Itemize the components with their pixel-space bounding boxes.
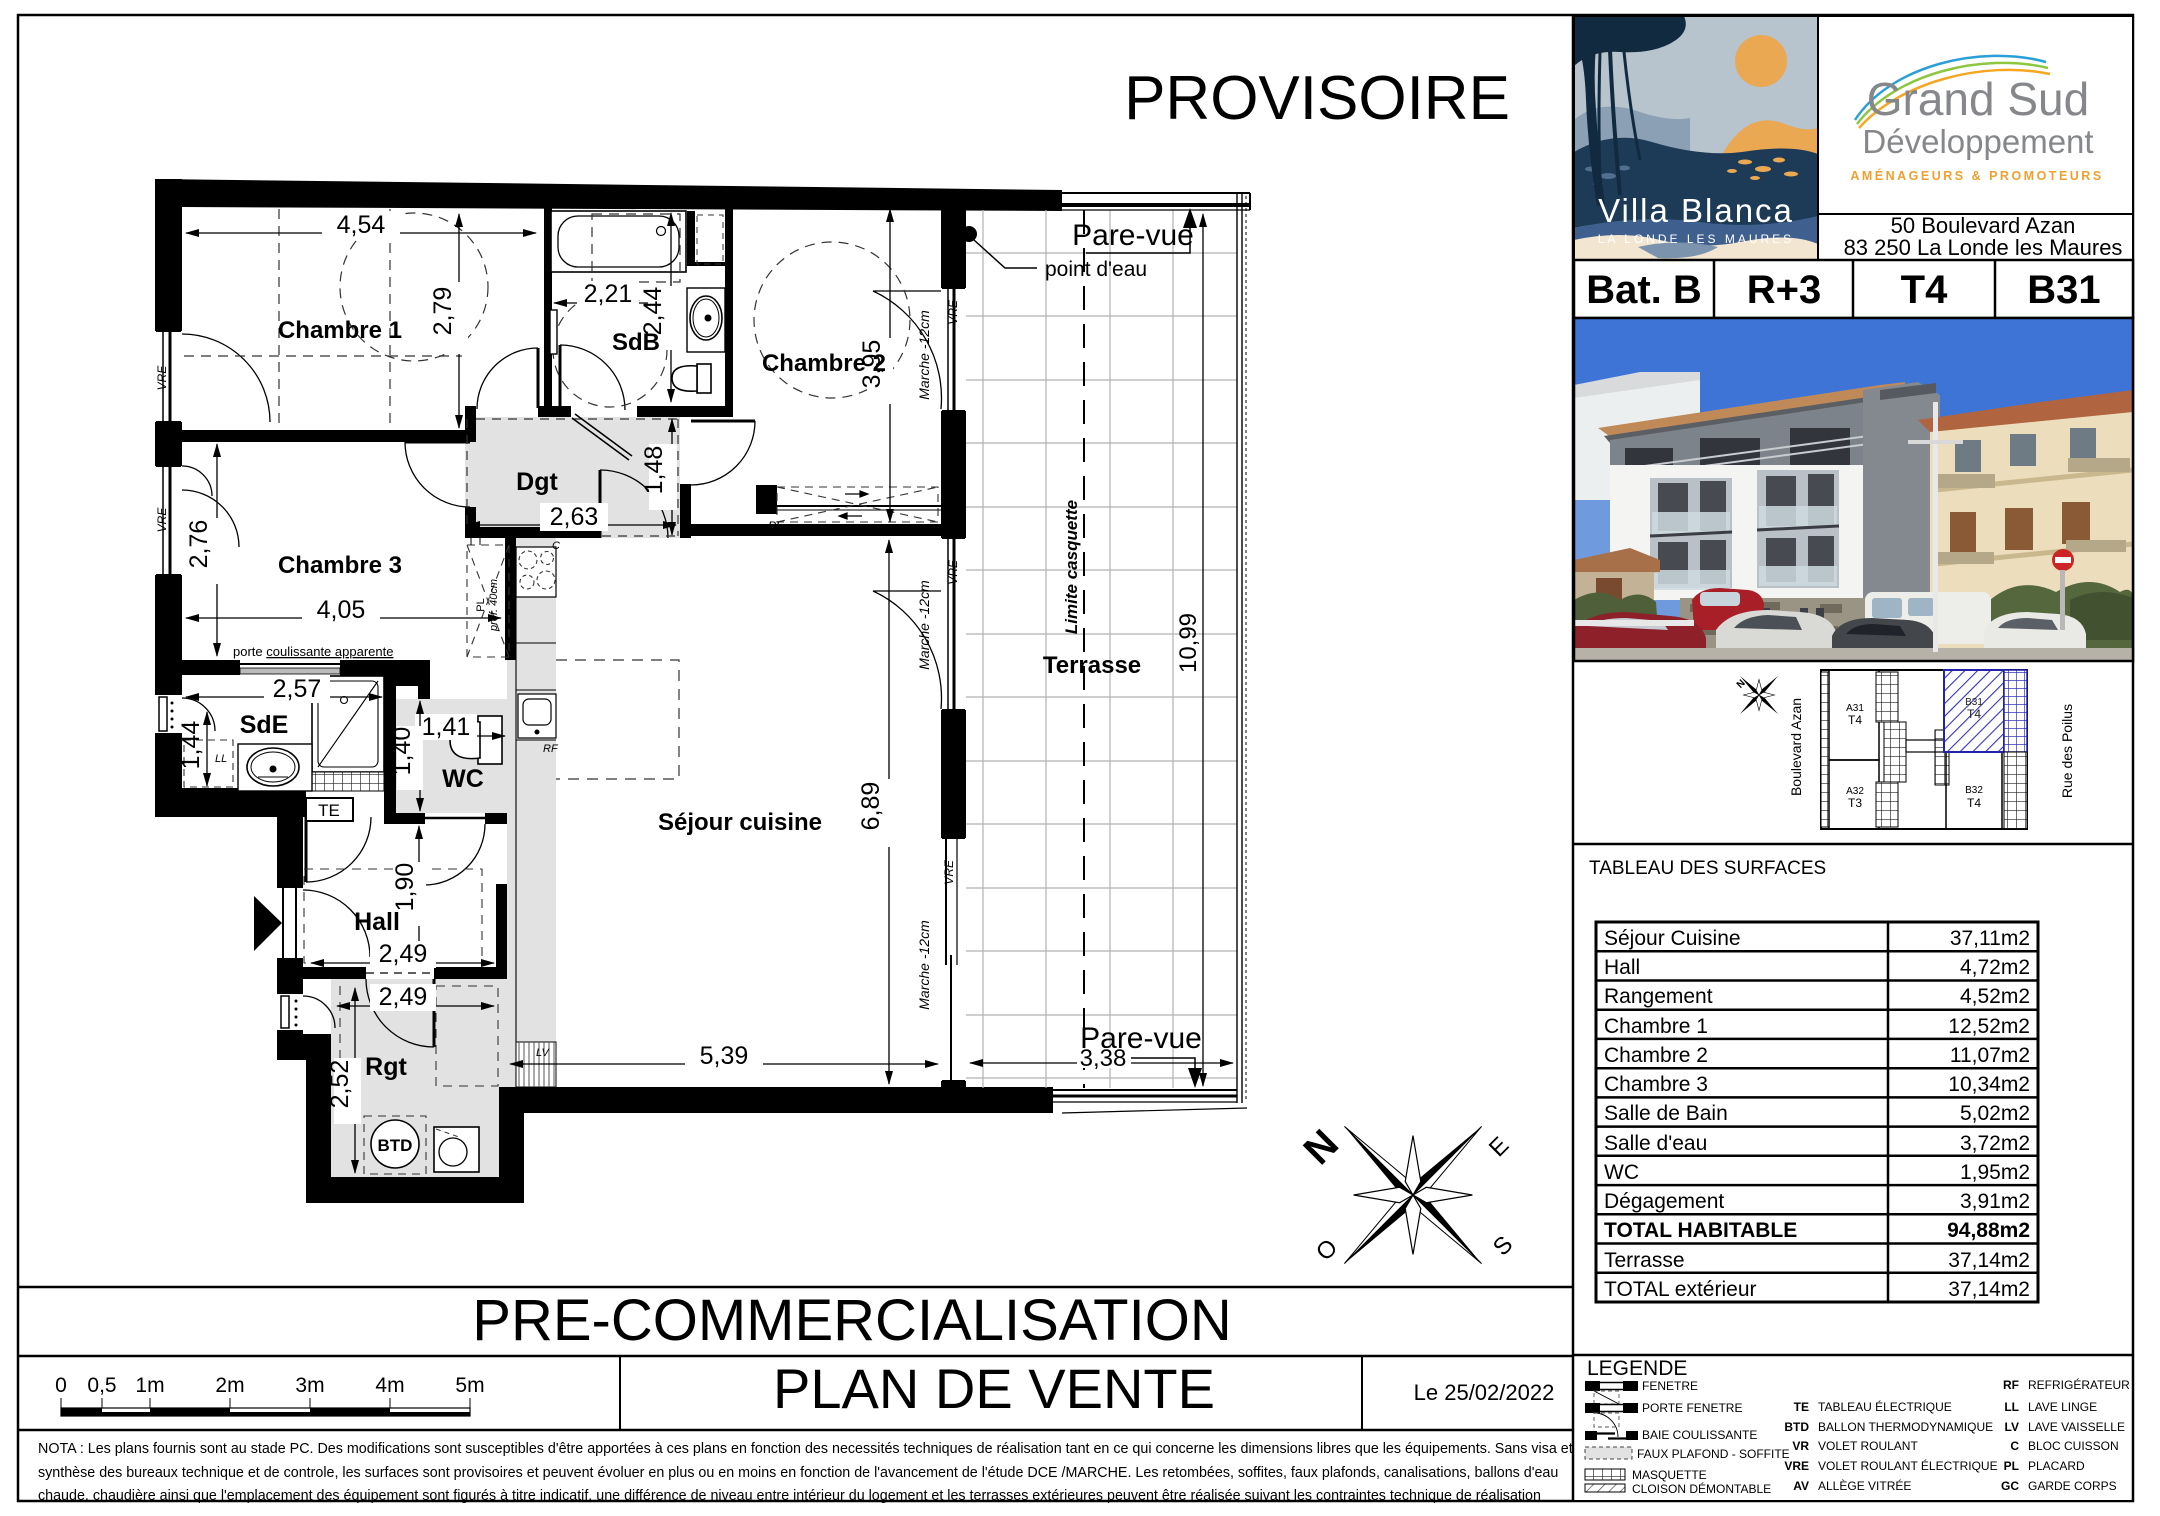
svg-text:Rgt: Rgt bbox=[365, 1053, 407, 1081]
svg-text:Rangement: Rangement bbox=[1604, 985, 1713, 1008]
svg-text:10,34m2: 10,34m2 bbox=[1948, 1073, 2030, 1096]
svg-text:C: C bbox=[2010, 1439, 2019, 1453]
svg-text:Marche -12cm: Marche -12cm bbox=[916, 920, 932, 1010]
svg-text:C: C bbox=[552, 540, 560, 552]
svg-text:LAVE LINGE: LAVE LINGE bbox=[2028, 1400, 2097, 1414]
svg-text:2,21: 2,21 bbox=[584, 280, 633, 308]
svg-text:12,52m2: 12,52m2 bbox=[1948, 1015, 2030, 1038]
svg-text:Grand Sud: Grand Sud bbox=[1867, 73, 2089, 125]
svg-text:TE: TE bbox=[1794, 1400, 1809, 1414]
svg-text:AMÉNAGEURS & PROMOTEURS: AMÉNAGEURS & PROMOTEURS bbox=[1850, 168, 2103, 183]
svg-text:Salle de Bain: Salle de Bain bbox=[1604, 1102, 1728, 1125]
svg-text:LEGENDE: LEGENDE bbox=[1587, 1357, 1687, 1380]
svg-text:PRE-COMMERCIALISATION: PRE-COMMERCIALISATION bbox=[472, 1288, 1231, 1353]
svg-text:WC: WC bbox=[1604, 1161, 1639, 1184]
svg-text:FENETRE: FENETRE bbox=[1642, 1379, 1698, 1393]
svg-text:NOTA : Les plans fournis sont: NOTA : Les plans fournis sont au stade P… bbox=[38, 1441, 1573, 1457]
svg-text:1,95m2: 1,95m2 bbox=[1960, 1161, 2030, 1184]
svg-text:1,44: 1,44 bbox=[177, 721, 205, 770]
svg-text:4m: 4m bbox=[375, 1374, 404, 1397]
svg-text:Marche -12cm: Marche -12cm bbox=[916, 580, 932, 670]
svg-text:RF: RF bbox=[543, 743, 559, 755]
svg-text:AV: AV bbox=[1793, 1479, 1809, 1493]
svg-text:WC: WC bbox=[442, 765, 484, 793]
svg-text:1,40: 1,40 bbox=[388, 727, 416, 776]
svg-text:point d'eau: point d'eau bbox=[1045, 258, 1147, 281]
svg-text:3,72m2: 3,72m2 bbox=[1960, 1132, 2030, 1155]
svg-text:VRE: VRE bbox=[155, 365, 169, 391]
svg-text:1,90: 1,90 bbox=[391, 863, 419, 912]
svg-text:PROVISOIRE: PROVISOIRE bbox=[1124, 64, 1510, 133]
svg-text:PL: PL bbox=[2004, 1459, 2019, 1473]
svg-text:PLACARD: PLACARD bbox=[2028, 1459, 2085, 1473]
svg-text:LL: LL bbox=[215, 753, 227, 765]
svg-text:Chambre 3: Chambre 3 bbox=[1604, 1073, 1708, 1096]
svg-text:94,88m2: 94,88m2 bbox=[1947, 1219, 2030, 1242]
svg-text:6,89: 6,89 bbox=[857, 782, 885, 831]
svg-text:BLOC CUISSON: BLOC CUISSON bbox=[2028, 1439, 2119, 1453]
svg-text:2,57: 2,57 bbox=[273, 675, 322, 703]
svg-text:PL: PL bbox=[768, 519, 783, 533]
svg-text:LV: LV bbox=[536, 1047, 551, 1059]
svg-text:Rue des Poilus: Rue des Poilus bbox=[2059, 704, 2075, 798]
svg-text:Chambre 2: Chambre 2 bbox=[762, 350, 886, 377]
svg-text:MASQUETTE: MASQUETTE bbox=[1632, 1468, 1707, 1482]
svg-text:Salle d'eau: Salle d'eau bbox=[1604, 1132, 1707, 1155]
svg-text:R+3: R+3 bbox=[1747, 268, 1822, 312]
svg-text:11,07m2: 11,07m2 bbox=[1950, 1044, 2030, 1067]
svg-text:LAVE VAISSELLE: LAVE VAISSELLE bbox=[2028, 1420, 2125, 1434]
svg-text:Le 25/02/2022: Le 25/02/2022 bbox=[1414, 1380, 1555, 1405]
svg-text:LA LONDE LES MAURES: LA LONDE LES MAURES bbox=[1598, 232, 1794, 246]
svg-text:83 250 La Londe les Maures: 83 250 La Londe les Maures bbox=[1844, 235, 2123, 260]
svg-text:Marche -12cm: Marche -12cm bbox=[916, 310, 932, 400]
svg-text:Chambre 2: Chambre 2 bbox=[1604, 1044, 1708, 1067]
svg-text:Hall: Hall bbox=[354, 908, 400, 936]
svg-text:GC: GC bbox=[2001, 1479, 2019, 1493]
svg-text:RF: RF bbox=[2003, 1378, 2019, 1392]
svg-text:PORTE FENETRE: PORTE FENETRE bbox=[1642, 1401, 1742, 1415]
svg-text:2,52: 2,52 bbox=[326, 1060, 354, 1109]
svg-text:5,02m2: 5,02m2 bbox=[1960, 1102, 2030, 1125]
svg-text:VOLET ROULANT ÉLECTRIQUE: VOLET ROULANT ÉLECTRIQUE bbox=[1818, 1458, 1998, 1473]
svg-text:SdB: SdB bbox=[612, 329, 660, 356]
svg-text:BTD: BTD bbox=[1784, 1420, 1809, 1434]
svg-text:T3: T3 bbox=[1848, 796, 1862, 810]
svg-text:BTD: BTD bbox=[378, 1136, 413, 1155]
svg-text:T4: T4 bbox=[1967, 796, 1981, 810]
svg-text:VRE: VRE bbox=[946, 559, 960, 585]
svg-text:4,52m2: 4,52m2 bbox=[1960, 985, 2030, 1008]
svg-text:LL: LL bbox=[2004, 1400, 2019, 1414]
svg-text:VRE: VRE bbox=[942, 859, 956, 885]
svg-text:1,48: 1,48 bbox=[640, 446, 668, 495]
svg-text:T4: T4 bbox=[1848, 713, 1862, 727]
svg-text:2,49: 2,49 bbox=[379, 940, 428, 968]
svg-text:T4: T4 bbox=[1901, 268, 1948, 312]
svg-text:37,14m2: 37,14m2 bbox=[1948, 1278, 2030, 1301]
svg-text:TABLEAU DES SURFACES: TABLEAU DES SURFACES bbox=[1589, 858, 1826, 879]
svg-text:0,5: 0,5 bbox=[87, 1374, 116, 1397]
svg-text:B32: B32 bbox=[1965, 785, 1983, 796]
svg-text:2m: 2m bbox=[215, 1374, 244, 1397]
svg-text:GARDE CORPS: GARDE CORPS bbox=[2028, 1479, 2117, 1493]
svg-text:BAIE COULISSANTE: BAIE COULISSANTE bbox=[1642, 1428, 1757, 1442]
svg-text:4,54: 4,54 bbox=[337, 211, 386, 239]
svg-text:Terrasse: Terrasse bbox=[1043, 652, 1141, 679]
svg-text:2,79: 2,79 bbox=[429, 287, 457, 336]
svg-text:CLOISON DÉMONTABLE: CLOISON DÉMONTABLE bbox=[1632, 1481, 1771, 1496]
svg-text:1m: 1m bbox=[135, 1374, 164, 1397]
svg-text:SdE: SdE bbox=[240, 711, 289, 739]
svg-text:Dgt: Dgt bbox=[516, 468, 558, 496]
svg-text:4,72m2: 4,72m2 bbox=[1960, 956, 2030, 979]
svg-text:VRE: VRE bbox=[155, 507, 169, 533]
svg-text:Hall: Hall bbox=[1604, 956, 1640, 979]
svg-text:1,41: 1,41 bbox=[422, 713, 471, 741]
svg-text:37,14m2: 37,14m2 bbox=[1948, 1249, 2030, 1272]
svg-text:PLAN DE VENTE: PLAN DE VENTE bbox=[773, 1357, 1215, 1420]
svg-text:T4: T4 bbox=[1967, 707, 1981, 721]
svg-text:4,05: 4,05 bbox=[317, 596, 366, 624]
svg-text:Bat. B: Bat. B bbox=[1586, 268, 1702, 312]
svg-text:VRE: VRE bbox=[946, 299, 960, 325]
svg-text:Boulevard Azan: Boulevard Azan bbox=[1788, 698, 1804, 796]
svg-text:Chambre 3: Chambre 3 bbox=[278, 552, 402, 579]
svg-text:Pare-vue: Pare-vue bbox=[1072, 219, 1194, 252]
svg-text:synthèse des bureaux technique: synthèse des bureaux technique et de con… bbox=[38, 1465, 1558, 1481]
svg-text:Chambre 1: Chambre 1 bbox=[1604, 1015, 1708, 1038]
svg-text:5m: 5m bbox=[455, 1374, 484, 1397]
svg-text:B31: B31 bbox=[2027, 268, 2100, 312]
svg-text:Séjour cuisine: Séjour cuisine bbox=[658, 809, 822, 836]
svg-text:VOLET ROULANT: VOLET ROULANT bbox=[1818, 1439, 1918, 1453]
svg-text:chaude, chaudière ainsi que l': chaude, chaudière ainsi que l'emplacemen… bbox=[38, 1488, 1541, 1504]
svg-text:ALLÈGE VITRÉE: ALLÈGE VITRÉE bbox=[1818, 1478, 1911, 1493]
svg-text:2,63: 2,63 bbox=[550, 503, 599, 531]
svg-text:PL: PL bbox=[475, 598, 487, 611]
svg-text:Villa Blanca: Villa Blanca bbox=[1598, 192, 1794, 229]
svg-text:3,38: 3,38 bbox=[1080, 1045, 1127, 1072]
svg-text:Terrasse: Terrasse bbox=[1604, 1249, 1685, 1272]
svg-text:TE: TE bbox=[318, 801, 340, 820]
svg-text:5,39: 5,39 bbox=[700, 1042, 749, 1070]
svg-text:LV: LV bbox=[2005, 1420, 2019, 1434]
svg-text:prof. 40cm: prof. 40cm bbox=[488, 579, 500, 632]
svg-text:2,76: 2,76 bbox=[185, 520, 213, 569]
svg-text:TABLEAU ÉLECTRIQUE: TABLEAU ÉLECTRIQUE bbox=[1818, 1399, 1952, 1414]
svg-text:VR: VR bbox=[1792, 1439, 1809, 1453]
svg-text:Chambre 1: Chambre 1 bbox=[278, 317, 402, 344]
svg-text:TOTAL extérieur: TOTAL extérieur bbox=[1604, 1278, 1757, 1301]
svg-text:TOTAL HABITABLE: TOTAL HABITABLE bbox=[1604, 1219, 1797, 1242]
svg-text:Développement: Développement bbox=[1862, 123, 2093, 160]
svg-text:10,99: 10,99 bbox=[1175, 613, 1202, 673]
svg-text:3m: 3m bbox=[295, 1374, 324, 1397]
svg-text:FAUX PLAFOND - SOFFITE: FAUX PLAFOND - SOFFITE bbox=[1637, 1447, 1790, 1461]
svg-text:REFRIGÉRATEUR: REFRIGÉRATEUR bbox=[2028, 1377, 2130, 1392]
svg-text:2,49: 2,49 bbox=[379, 983, 428, 1011]
svg-text:Limite casquette: Limite casquette bbox=[1062, 500, 1081, 634]
svg-text:porte coulissante apparente: porte coulissante apparente bbox=[233, 644, 393, 659]
svg-text:3,91m2: 3,91m2 bbox=[1960, 1190, 2030, 1213]
svg-text:BALLON THERMODYNAMIQUE: BALLON THERMODYNAMIQUE bbox=[1818, 1420, 1993, 1434]
svg-text:0: 0 bbox=[55, 1374, 67, 1397]
svg-text:Dégagement: Dégagement bbox=[1604, 1190, 1724, 1213]
svg-text:VRE: VRE bbox=[1784, 1459, 1809, 1473]
svg-text:Séjour Cuisine: Séjour Cuisine bbox=[1604, 927, 1741, 950]
svg-text:37,11m2: 37,11m2 bbox=[1950, 927, 2030, 950]
